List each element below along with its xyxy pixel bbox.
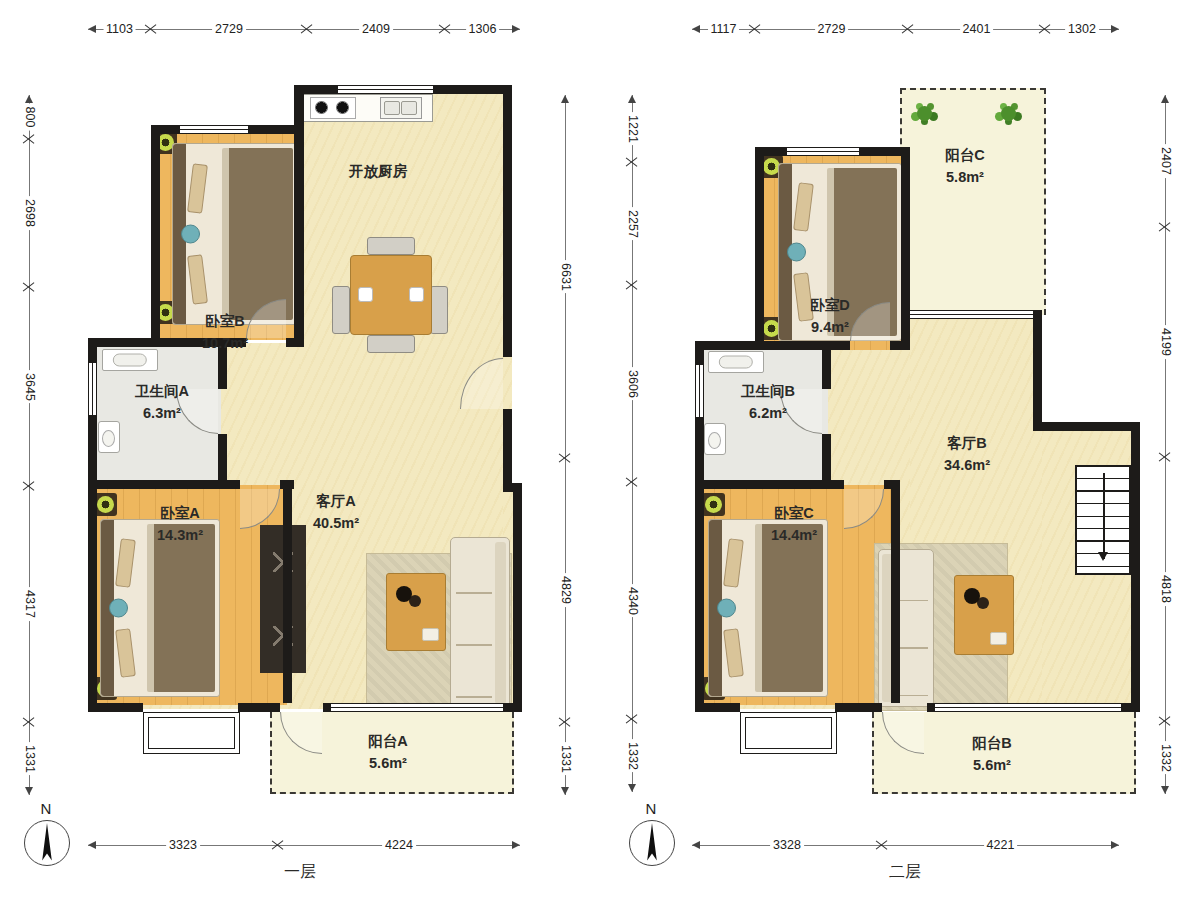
wall-segment bbox=[890, 341, 910, 350]
window bbox=[180, 125, 248, 134]
wall-segment bbox=[503, 85, 512, 357]
dim-arrow bbox=[628, 95, 636, 103]
dim-segment: 2401 bbox=[908, 22, 1045, 38]
bay-window bbox=[740, 712, 837, 754]
plant-icon bbox=[990, 97, 1026, 129]
wall-segment bbox=[513, 489, 522, 712]
dim-arrow bbox=[512, 25, 520, 33]
dim-tick bbox=[22, 280, 36, 294]
bathroom-sink-icon bbox=[102, 349, 158, 371]
wall-segment bbox=[1033, 422, 1140, 431]
dim-segment: 4224 bbox=[278, 838, 520, 854]
dim-segment: 4818 bbox=[1158, 457, 1174, 721]
wall-segment bbox=[1033, 310, 1042, 431]
wall-segment bbox=[88, 703, 143, 712]
dining-chair bbox=[430, 286, 448, 334]
dim-tick bbox=[438, 22, 452, 36]
room-label-bedroom-a: 卧室A14.3m² bbox=[120, 503, 240, 547]
dim-tick bbox=[300, 22, 314, 36]
dim-arrow bbox=[692, 841, 700, 849]
wall-segment bbox=[884, 480, 900, 489]
dim-tick bbox=[22, 479, 36, 493]
wall-segment bbox=[1121, 703, 1140, 712]
wall-segment bbox=[755, 147, 764, 350]
dim-tick bbox=[625, 155, 639, 169]
dim-segment: 4829 bbox=[558, 458, 574, 722]
dim-segment: 2407 bbox=[1158, 95, 1174, 227]
wall-segment bbox=[503, 703, 522, 712]
toilet-icon bbox=[704, 423, 726, 455]
dim-segment: 1302 bbox=[1045, 22, 1119, 38]
stove-icon bbox=[310, 97, 356, 119]
wall-segment bbox=[927, 703, 935, 712]
dim-segment: 3328 bbox=[692, 838, 882, 854]
wall-segment bbox=[218, 434, 227, 480]
balcony-window bbox=[910, 310, 1033, 319]
floor2-caption: 二层 bbox=[805, 862, 1005, 883]
room-label-bedroom-b: 卧室B10.7m² bbox=[165, 311, 285, 355]
bay-window bbox=[143, 712, 240, 754]
nightstand bbox=[702, 493, 725, 516]
room-label-living-a: 客厅A40.5m² bbox=[276, 491, 396, 535]
room-label-balcony-b: 阳台B5.6m² bbox=[932, 733, 1052, 777]
wall-segment bbox=[755, 341, 850, 350]
dim-segment: 4199 bbox=[1158, 227, 1174, 457]
north-label: N bbox=[35, 800, 57, 817]
dim-arrow bbox=[561, 95, 569, 103]
dim-segment: 2257 bbox=[625, 162, 641, 285]
dim-arrow bbox=[1161, 786, 1169, 794]
wall-segment bbox=[1131, 422, 1140, 712]
dim-segment: 4317 bbox=[22, 486, 38, 722]
dim-tick bbox=[901, 22, 915, 36]
north-label: N bbox=[640, 800, 662, 817]
dim-tick bbox=[271, 838, 285, 852]
dim-segment: 4221 bbox=[882, 838, 1119, 854]
window bbox=[88, 363, 97, 415]
kitchen-sink-icon bbox=[380, 97, 422, 119]
nightstand bbox=[94, 493, 117, 516]
compass-icon bbox=[629, 820, 675, 866]
dim-segment: 3645 bbox=[22, 287, 38, 486]
dim-tick bbox=[558, 451, 572, 465]
toilet-icon bbox=[98, 421, 120, 453]
dim-arrow bbox=[25, 787, 33, 795]
dim-segment: 1331 bbox=[558, 722, 574, 795]
wall-segment bbox=[891, 489, 900, 703]
dim-tick bbox=[1038, 22, 1052, 36]
dim-tick bbox=[875, 838, 889, 852]
dim-segment: 2729 bbox=[151, 22, 307, 38]
floorplan-canvas: 开放厨房 卧室B10.7m² 卫生间A6.3m² 卧室A14.3m² 客厅A40… bbox=[0, 0, 1200, 900]
wall-segment bbox=[280, 480, 294, 489]
bed-bedroom-b bbox=[172, 143, 298, 325]
dining-table bbox=[350, 255, 432, 335]
dim-segment: 1332 bbox=[1158, 721, 1174, 794]
dim-segment: 2409 bbox=[307, 22, 445, 38]
dim-segment: 1117 bbox=[692, 22, 755, 38]
room-label-kitchen: 开放厨房 bbox=[318, 161, 438, 183]
dim-tick bbox=[625, 712, 639, 726]
dim-segment: 2698 bbox=[22, 139, 38, 287]
wall-segment bbox=[695, 341, 755, 350]
dim-segment: 3323 bbox=[88, 838, 278, 854]
floor1-caption: 一层 bbox=[200, 862, 400, 883]
sofa bbox=[878, 549, 934, 707]
dim-segment: 4340 bbox=[625, 482, 641, 719]
wall-segment bbox=[151, 125, 160, 338]
window bbox=[338, 85, 433, 94]
dim-segment: 1103 bbox=[88, 22, 151, 38]
dim-tick bbox=[144, 22, 158, 36]
dim-arrow bbox=[1111, 25, 1119, 33]
dim-tick bbox=[22, 715, 36, 729]
dim-arrow bbox=[512, 841, 520, 849]
floor1-plan: 开放厨房 卧室B10.7m² 卫生间A6.3m² 卧室A14.3m² 客厅A40… bbox=[88, 85, 524, 797]
window bbox=[787, 147, 859, 156]
room-label-living-b: 客厅B34.6m² bbox=[907, 433, 1027, 477]
wall-segment bbox=[238, 703, 280, 712]
staircase bbox=[1075, 465, 1131, 575]
wall-segment bbox=[695, 480, 844, 489]
bathroom-sink-icon bbox=[708, 351, 764, 373]
dim-arrow bbox=[88, 25, 96, 33]
plant-icon bbox=[906, 97, 942, 129]
compass-icon bbox=[24, 820, 70, 866]
dim-arrow bbox=[1161, 95, 1169, 103]
wall-segment bbox=[835, 703, 882, 712]
dim-segment: 1221 bbox=[625, 95, 641, 162]
balcony-window bbox=[935, 703, 1121, 712]
wall-segment bbox=[695, 703, 740, 712]
sofa bbox=[450, 537, 510, 709]
dim-segment: 1331 bbox=[22, 722, 38, 795]
dim-tick bbox=[1158, 450, 1172, 464]
wall-segment bbox=[323, 703, 331, 712]
dim-arrow bbox=[88, 841, 96, 849]
dim-tick bbox=[748, 22, 762, 36]
wall-segment bbox=[88, 480, 240, 489]
wall-segment bbox=[294, 85, 304, 347]
dining-chair bbox=[367, 237, 415, 255]
window bbox=[695, 365, 704, 417]
floor2-plan: 阳台C5.8m² 卧室D9.4m² 卫生间B6.2m² 卧室C14.4m² 客厅… bbox=[692, 85, 1140, 797]
wall-segment bbox=[88, 338, 151, 347]
dim-segment: 6631 bbox=[558, 95, 574, 458]
dining-chair bbox=[367, 335, 415, 353]
room-label-bathroom-a: 卫生间A6.3m² bbox=[102, 381, 222, 425]
dim-arrow bbox=[628, 784, 636, 792]
dim-tick bbox=[625, 278, 639, 292]
dim-segment: 2729 bbox=[755, 22, 908, 38]
room-label-bedroom-c: 卧室C14.4m² bbox=[734, 503, 854, 547]
dim-tick bbox=[1158, 220, 1172, 234]
dining-chair bbox=[332, 286, 350, 334]
dim-segment: 1306 bbox=[445, 22, 520, 38]
balcony-window bbox=[331, 703, 503, 712]
coffee-table bbox=[954, 575, 1014, 655]
dim-arrow bbox=[1111, 841, 1119, 849]
dim-arrow bbox=[25, 95, 33, 103]
wall-segment bbox=[822, 434, 831, 480]
room-label-balcony-c: 阳台C5.8m² bbox=[905, 145, 1025, 189]
dim-tick bbox=[22, 132, 36, 146]
room-label-bedroom-d: 卧室D9.4m² bbox=[770, 295, 890, 339]
dim-tick bbox=[558, 715, 572, 729]
dim-arrow bbox=[561, 787, 569, 795]
room-label-balcony-a: 阳台A5.6m² bbox=[328, 731, 448, 775]
wall-segment bbox=[286, 338, 304, 347]
dim-tick bbox=[1158, 714, 1172, 728]
coffee-table bbox=[386, 573, 446, 651]
dim-segment: 1332 bbox=[625, 719, 641, 792]
wall-segment bbox=[503, 409, 512, 489]
dim-segment: 3606 bbox=[625, 285, 641, 482]
room-label-bathroom-b: 卫生间B6.2m² bbox=[708, 381, 828, 425]
dim-tick bbox=[625, 475, 639, 489]
dim-arrow bbox=[692, 25, 700, 33]
